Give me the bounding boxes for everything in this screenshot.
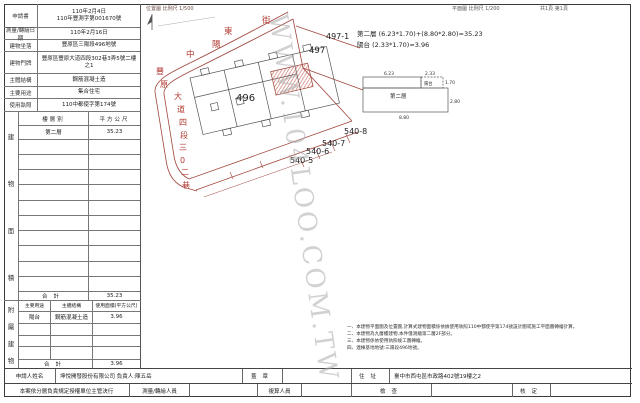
empty-cell: [92, 336, 140, 347]
parcel-label-540-6: 540-6: [306, 147, 329, 156]
empty-cell: [19, 347, 50, 359]
empty-row: [19, 215, 140, 230]
usage-value: 集合住宅: [38, 87, 140, 98]
parcel-label-540-7: 540-7: [322, 139, 345, 148]
floor-area-table: 建 物 面 積 樓層別 平方公尺 第二層 35.23: [4, 111, 141, 300]
parcel-label-497: 497: [309, 46, 325, 56]
building-info-table: 申請書 110年2月4日 110年豐測字第001670號 測量/轉繪日期 110…: [4, 4, 141, 111]
empty-cell: [88, 170, 140, 184]
applicant-name: 坤悅開發股份有限公司 負責人:陳五岳: [56, 369, 243, 383]
side-char: 附: [8, 304, 15, 314]
dim-main-height: 2.80: [450, 99, 460, 105]
surveyor-signature-area: [190, 384, 258, 397]
empty-row: [19, 200, 140, 215]
empty-cell: [19, 324, 50, 335]
application-value: 110年2月4日 110年豐測字第001670號: [38, 4, 140, 27]
structure-value: 鋼筋混凝土造: [38, 74, 140, 86]
total-label: 合計: [19, 292, 88, 300]
table-row: 第二層 35.23: [19, 125, 140, 138]
street-char: 陽: [212, 40, 221, 50]
subject-unit-hatched: [271, 63, 313, 95]
annex-structure-cell: 鋼筋混凝土造: [50, 312, 92, 324]
license-label: 使用執照: [4, 99, 38, 111]
applicant-label: 申請人姓名: [4, 369, 56, 383]
dim-main-width: 8.80: [399, 115, 409, 121]
empty-row: [19, 261, 140, 276]
table-header-row: 主要用途 主體結構 使用面積(平方公尺): [19, 301, 140, 311]
applicant-row: 申請人姓名 坤悅開發股份有限公司 負責人:陳五岳 蓋章 住址 臺中市西屯區市政路…: [4, 368, 632, 383]
floor-col-header: 樓層別: [19, 112, 88, 125]
empty-row: [19, 230, 140, 245]
floor-plan-dimensions: 6.23 2.33 1.70 8.80 2.80 陽台 第二層: [384, 71, 460, 121]
application-label: 申請書: [4, 4, 38, 27]
empty-cell: [50, 336, 92, 347]
empty-cell: [19, 140, 88, 154]
land-location-value: 豐原區三陽段496地號: [38, 40, 140, 51]
area-cell: 35.23: [88, 126, 140, 138]
approve-signature-area: [551, 384, 632, 397]
empty-row: [19, 154, 140, 169]
table-row: 建物門牌 豐原區豐原大道四段302巷3弄5號二樓之1: [4, 52, 140, 74]
empty-cell: [88, 155, 140, 169]
parcel-label-496: 496: [236, 93, 255, 104]
annex-use-cell: 陽台: [19, 312, 50, 324]
plan-scale-note: 平面圖 比例尺 1/200: [452, 5, 500, 12]
annex-total-label: 合計: [19, 360, 92, 368]
approve-label: 核定: [513, 384, 551, 397]
dim-balcony-width: 2.33: [425, 71, 435, 77]
street-char: 四: [179, 118, 187, 127]
empty-cell: [88, 140, 140, 154]
sqm-col-header: 平方公尺: [88, 112, 140, 125]
north-arrow-icon: [147, 14, 215, 30]
empty-cell: [19, 262, 88, 276]
floor-cell: 第二層: [19, 126, 88, 138]
inspect-label: 檢查: [352, 384, 432, 397]
table-row: 使用執照 110中都使字第174號: [4, 99, 140, 111]
empty-cell: [19, 185, 88, 199]
door-plate-value: 豐原區豐原大道四段302巷3弄5號二樓之1: [38, 52, 140, 73]
annex-use-header: 主要用途: [19, 301, 50, 311]
balcony-label: 陽台: [424, 80, 433, 87]
empty-cell: [92, 324, 140, 335]
floor-label: 第二層: [390, 92, 407, 100]
page-count-note: 共1頁 第1頁: [540, 5, 568, 12]
side-char: 積: [8, 272, 15, 282]
street-char: 豐: [156, 66, 164, 76]
street-char: 二: [181, 168, 189, 177]
empty-row: [19, 323, 140, 335]
checker-signature-area: [302, 384, 352, 397]
annex-building-table: 附 屬 建 物 主要用途 主體結構 使用面積(平方公尺) 陽台 鋼筋混凝土造 3…: [4, 300, 141, 368]
empty-cell: [88, 231, 140, 245]
side-char: 物: [8, 178, 15, 188]
annex-area-cell: 3.96: [92, 312, 140, 324]
street-char: 三: [179, 143, 187, 152]
table-header-row: 樓層別 平方公尺: [19, 112, 140, 125]
notes-block: 一、本建物平面圖及位置圖,計算式建物面積係依據使用執照110中都使字第174號設…: [347, 324, 633, 352]
floor-area-formula: 第二層 (6.23*1.70)+(8.80*2.80)=35.23: [357, 29, 483, 38]
table-row: 測量/轉繪日期 110年2月16日: [4, 28, 140, 40]
total-value: 35.23: [88, 292, 140, 300]
street-char: 中: [186, 49, 195, 60]
usage-label: 主要用途: [4, 87, 38, 98]
empty-cell: [19, 155, 88, 169]
street-char: 段: [180, 130, 188, 140]
empty-row: [19, 139, 140, 154]
side-char: 面: [8, 225, 15, 235]
street-char: 東: [224, 26, 233, 37]
total-row: 合計 3.96: [19, 359, 140, 368]
floor-area-side-label: 建 物 面 積: [4, 112, 19, 300]
address-value: 臺中市西屯區市政路402號19樓之2: [390, 369, 632, 383]
empty-cell: [19, 216, 88, 230]
empty-cell: [19, 201, 88, 215]
empty-cell: [92, 347, 140, 359]
annex-grid: 主要用途 主體結構 使用面積(平方公尺) 陽台 鋼筋混凝土造 3.96 合計 3…: [19, 301, 140, 368]
street-char: 0: [180, 156, 185, 165]
empty-cell: [19, 246, 88, 260]
empty-row: [19, 245, 140, 260]
note-line-3: 三、本建物係依使用執照竣工圖轉繪。: [347, 338, 633, 345]
annex-area-header: 使用面積(平方公尺): [92, 301, 140, 311]
annex-side-label: 附 屬 建 物: [4, 301, 19, 368]
land-location-label: 建物坐落: [4, 40, 38, 51]
note-line-2: 二、本建物為九層樓建物,本件僅測繪第二層2F部分。: [347, 331, 633, 338]
empty-cell: [88, 185, 140, 199]
side-char: 建: [8, 131, 15, 141]
empty-cell: [19, 231, 88, 245]
side-char: 物: [8, 355, 15, 365]
dim-strip-height: 1.70: [445, 80, 455, 86]
parcel-label-540-8: 540-8: [344, 127, 367, 136]
empty-cell: [88, 277, 140, 291]
table-row: 建物坐落 豐原區三陽段496地號: [4, 40, 140, 52]
empty-row: [19, 184, 140, 199]
location-scale-note: 位置圖 比例尺 1/500: [146, 5, 194, 12]
street-char: 街: [262, 15, 271, 26]
empty-row: [19, 276, 140, 291]
table-row: 主要用途 集合住宅: [4, 87, 140, 99]
seal-label: 蓋章: [243, 369, 283, 383]
balcony-area-formula: 陽台 (2.33*1.70)=3.96: [357, 40, 429, 49]
parcel-label-497-1: 497-1: [326, 32, 349, 41]
empty-cell: [50, 324, 92, 335]
parcel-label-540-5: 540-5: [290, 156, 313, 165]
surveyor-label: 測量/轉繪人員: [130, 384, 190, 397]
street-char: 原: [160, 80, 168, 89]
street-char: 大: [174, 91, 182, 101]
door-plate-label: 建物門牌: [4, 52, 38, 73]
survey-date-value: 110年2月16日: [38, 28, 140, 39]
empty-cell: [88, 262, 140, 276]
approval-row: 本案依分層負責規定授權單位主管決行 測量/轉繪人員 複算人員 檢查 核定: [4, 383, 632, 397]
empty-cell: [88, 216, 140, 230]
table-row: 陽台 鋼筋混凝土造 3.96: [19, 311, 140, 324]
checker-label: 複算人員: [258, 384, 302, 397]
table-row: 主體結構 鋼筋混凝土造: [4, 74, 140, 87]
empty-cell: [19, 336, 50, 347]
location-map: 位置圖 比例尺 1/500 平面圖 比例尺 1/200 共1頁 第1頁: [140, 4, 636, 368]
survey-date-label: 測量/轉繪日期: [4, 28, 38, 39]
annex-structure-header: 主體結構: [50, 301, 92, 311]
empty-row: [19, 346, 140, 359]
note-line-4: 四、連棟基地地號:三陽段496地號。: [347, 345, 633, 352]
inspect-signature-area: [432, 384, 513, 397]
seal-area: [283, 369, 352, 383]
license-value: 110中都使字第174號: [38, 99, 140, 111]
street-char: 巷: [182, 181, 190, 190]
dim-strip-width: 6.23: [384, 71, 394, 77]
empty-cell: [50, 347, 92, 359]
empty-cell: [88, 246, 140, 260]
side-char: 屬: [8, 321, 15, 331]
address-label: 住址: [352, 369, 390, 383]
note-line-1: 一、本建物平面圖及位置圖,計算式建物面積係依據使用執照110中都使字第174號設…: [347, 324, 633, 331]
delegation-note: 本案依分層負責規定授權單位主管決行: [4, 384, 130, 397]
empty-cell: [19, 170, 88, 184]
table-row: 申請書 110年2月4日 110年豐測字第001670號: [4, 4, 140, 28]
empty-cell: [19, 277, 88, 291]
structure-label: 主體結構: [4, 74, 38, 86]
empty-row: [19, 335, 140, 347]
annex-total-value: 3.96: [92, 360, 140, 368]
total-row: 合計 35.23: [19, 291, 140, 300]
street-char: 道: [177, 104, 185, 114]
empty-row: [19, 169, 140, 184]
empty-cell: [88, 201, 140, 215]
survey-document-page: 申請書 110年2月4日 110年豐測字第001670號 測量/轉繪日期 110…: [0, 0, 640, 403]
side-char: 建: [8, 338, 15, 348]
floor-area-grid: 樓層別 平方公尺 第二層 35.23 合計 35.23: [19, 112, 140, 300]
